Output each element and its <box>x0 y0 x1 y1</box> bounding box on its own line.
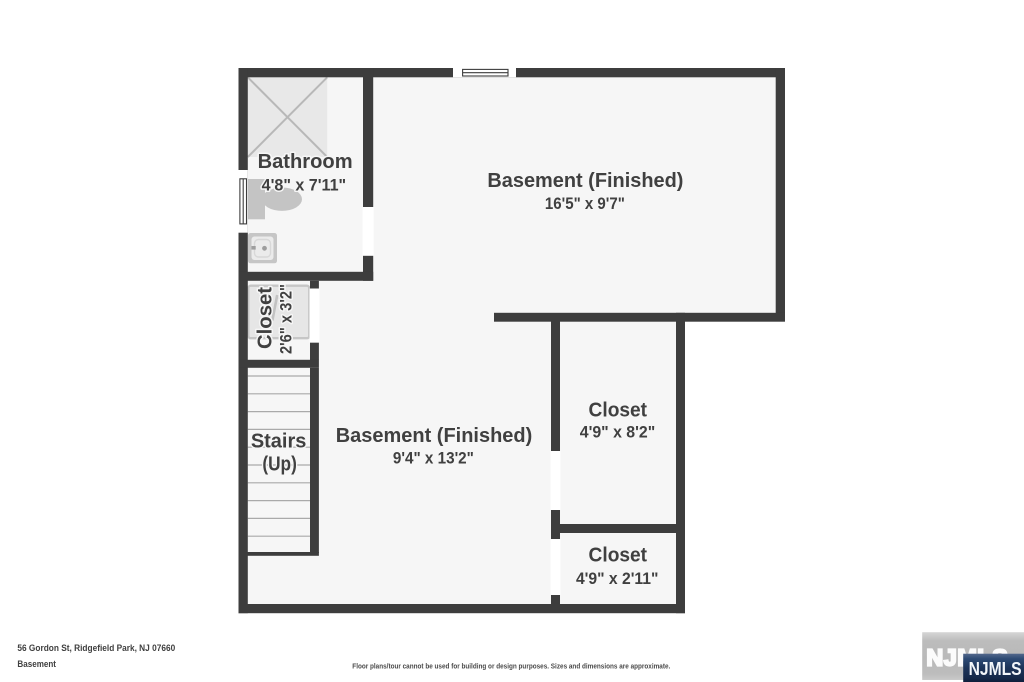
svg-text:16'5" x 9'7": 16'5" x 9'7" <box>545 194 625 213</box>
svg-text:Basement: Basement <box>17 659 56 670</box>
svg-text:Basement (Finished): Basement (Finished) <box>336 425 533 447</box>
svg-text:Floor plans/tour cannot be use: Floor plans/tour cannot be used for buil… <box>352 663 670 670</box>
svg-text:Stairs: Stairs <box>251 431 307 453</box>
svg-text:Closet: Closet <box>255 287 277 349</box>
svg-text:9'4" x 13'2": 9'4" x 13'2" <box>393 448 474 467</box>
svg-text:Bathroom: Bathroom <box>258 151 353 173</box>
svg-text:4'8" x 7'11": 4'8" x 7'11" <box>262 176 347 195</box>
svg-text:(Up): (Up) <box>262 454 297 476</box>
svg-text:4'9" x 8'2": 4'9" x 8'2" <box>580 423 656 442</box>
svg-text:2'6" x 3'2": 2'6" x 3'2" <box>277 284 296 354</box>
svg-text:56 Gordon St, Ridgefield Park,: 56 Gordon St, Ridgefield Park, NJ 07660 <box>17 643 175 654</box>
svg-text:Closet: Closet <box>589 400 648 422</box>
svg-text:4'9" x 2'11": 4'9" x 2'11" <box>576 569 659 588</box>
svg-text:Closet: Closet <box>589 545 648 567</box>
svg-text:NJMLS: NJMLS <box>969 659 1022 679</box>
svg-text:Basement (Finished): Basement (Finished) <box>487 170 683 192</box>
